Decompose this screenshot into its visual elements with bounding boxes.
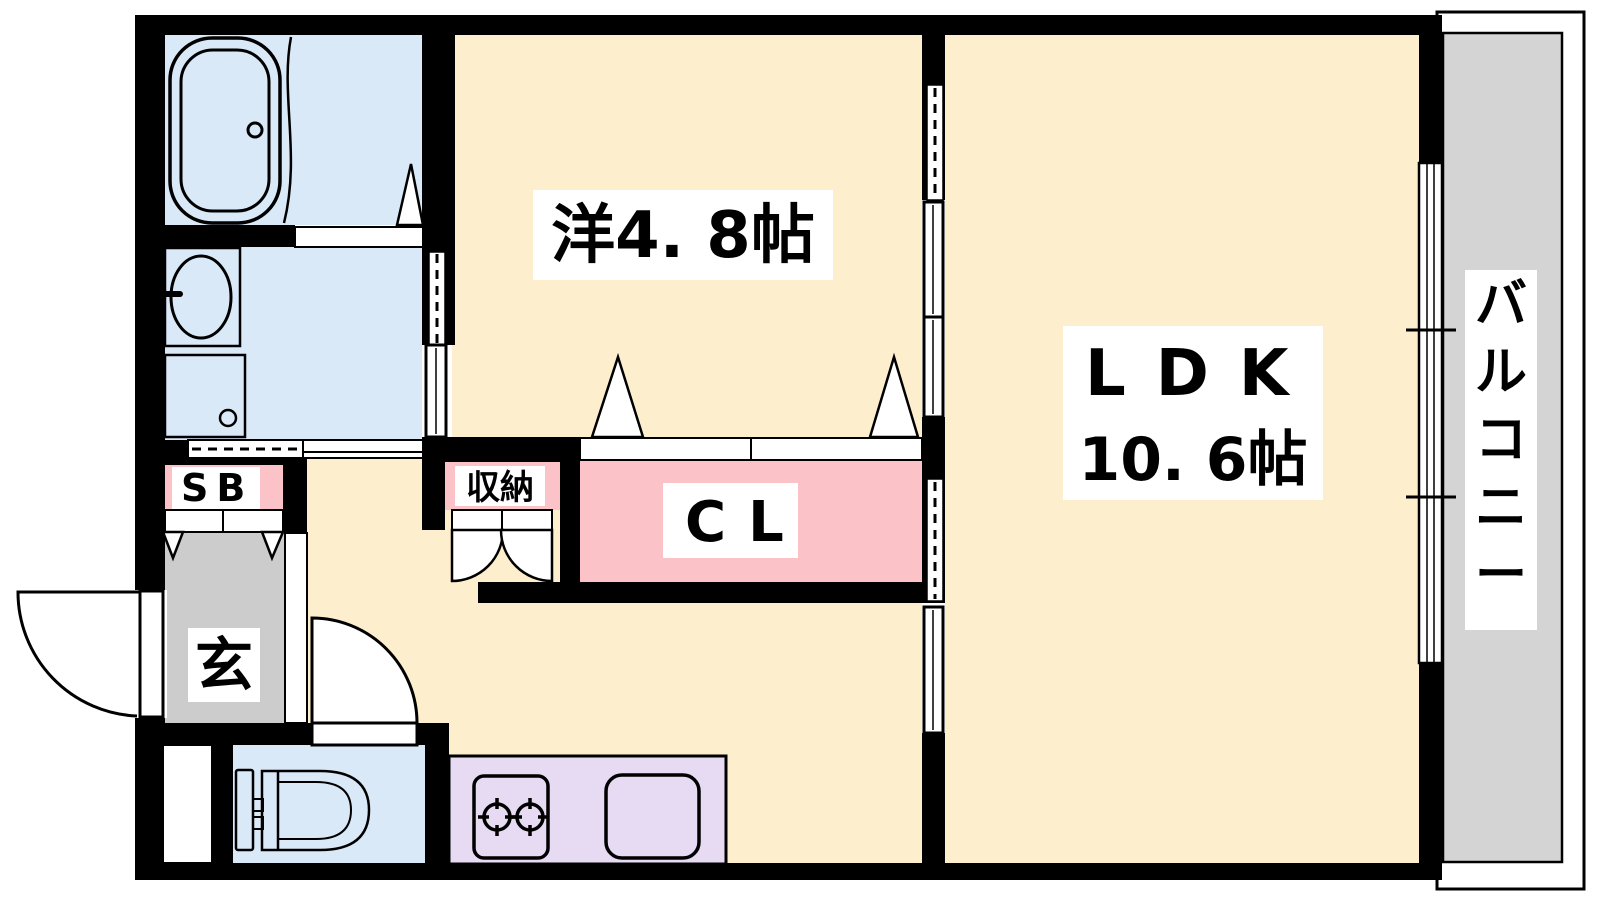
floor-plan-canvas: 洋4. 8帖 LDK 10. 6帖 CL 収納 SB 玄 バルコニー <box>0 0 1600 900</box>
wall-entry-bottom <box>135 723 312 745</box>
wall-bath-wash <box>165 225 295 247</box>
cl-label: CL <box>685 490 806 555</box>
wall-top <box>135 15 1442 35</box>
shoebox-door-left <box>165 510 223 532</box>
washroom-door-panel <box>303 440 423 458</box>
wall-toilet-right <box>425 745 449 863</box>
wall-niche-right <box>212 745 233 863</box>
cl-door-left <box>580 438 751 460</box>
western-room-label: 洋4. 8帖 <box>551 199 815 273</box>
shoebox-door-right <box>223 510 283 532</box>
entrance-label: 玄 <box>195 631 253 699</box>
wall-storage-left <box>422 437 445 530</box>
west-slider-track <box>429 252 445 345</box>
wall-closet-bottom <box>478 582 945 603</box>
storage-door-right <box>502 510 552 530</box>
wall-right-upper <box>1419 15 1442 163</box>
storage-door-left <box>452 510 502 530</box>
kitchen-counter <box>449 756 726 864</box>
entrance-door-leaf <box>140 591 163 717</box>
wall-right-lower <box>1419 663 1442 863</box>
ldk-size-label: 10. 6帖 <box>1079 425 1308 495</box>
entrance-step <box>285 533 307 723</box>
bathroom-floor <box>165 35 422 225</box>
pipe-space <box>163 745 212 863</box>
storage-label: 収納 <box>466 468 534 508</box>
toilet-door-leaf <box>312 723 417 745</box>
floor-plan: 洋4. 8帖 LDK 10. 6帖 CL 収納 SB 玄 バルコニー <box>0 0 1600 900</box>
wall-hall-stub <box>417 723 449 745</box>
balcony-label: バルコニー <box>1475 275 1527 605</box>
ldk-label: LDK <box>1085 337 1319 411</box>
cl-door-right <box>751 438 922 460</box>
balcony-window <box>1419 163 1442 663</box>
wall-sb-right <box>283 455 307 533</box>
washroom-floor <box>165 247 422 440</box>
wall-storage-cl <box>560 437 580 582</box>
sb-label: SB <box>181 466 253 510</box>
bathroom-door <box>295 227 423 247</box>
wall-bottom <box>135 863 1442 880</box>
wall-ldk-c <box>922 733 945 863</box>
